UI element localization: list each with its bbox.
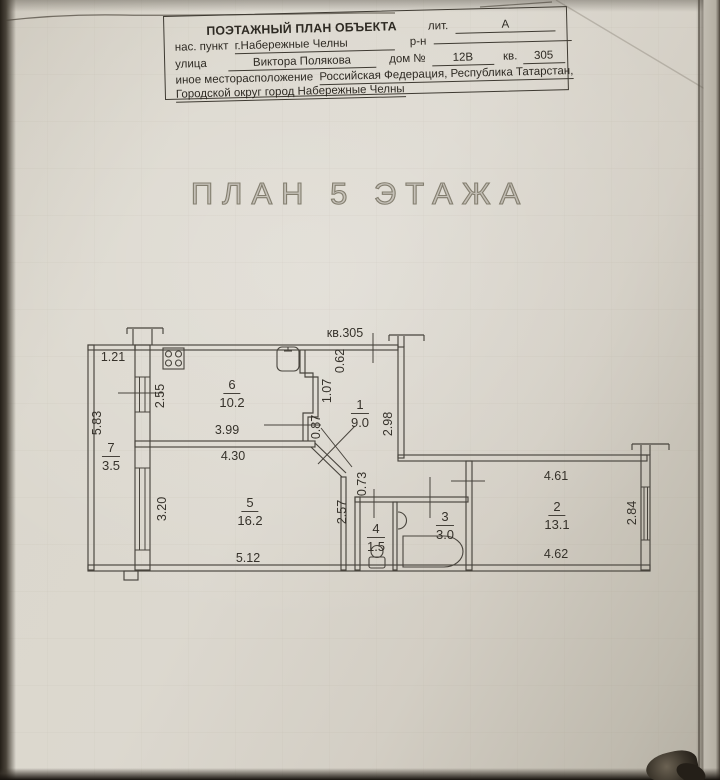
photo-left-edge xyxy=(0,0,16,780)
dimension-label: 2.55 xyxy=(153,384,167,408)
balcony-outer-wall xyxy=(88,345,94,570)
left-wall-band xyxy=(135,345,150,570)
room-area: 16.2 xyxy=(237,512,262,528)
dimension-label: 4.62 xyxy=(544,547,568,561)
room-area: 10.2 xyxy=(219,394,244,410)
room-label-5: 516.2 xyxy=(237,494,262,528)
dimension-label: 5.12 xyxy=(236,551,260,565)
dimension-label: 4.61 xyxy=(544,469,568,483)
room-label-1: 19.0 xyxy=(351,396,369,430)
room-number: 6 xyxy=(223,377,240,394)
dimension-label: 2.98 xyxy=(381,412,395,436)
room2-left-wall xyxy=(466,461,472,570)
room-number: 1 xyxy=(351,397,368,414)
photo-bottom-edge xyxy=(0,768,720,780)
wc-bath-divider-wall xyxy=(393,502,397,570)
room-label-7: 73.5 xyxy=(102,439,120,473)
dimension-label: 5.83 xyxy=(90,411,104,435)
kitchen-room5-wall xyxy=(135,441,315,447)
room-label-6: 610.2 xyxy=(219,376,244,410)
room-number: 2 xyxy=(548,499,565,516)
dimension-label: 0.62 xyxy=(333,349,347,373)
room-number: 4 xyxy=(367,521,384,538)
dimension-label: 3.20 xyxy=(155,497,169,521)
dimension-label: 2.57 xyxy=(335,500,349,524)
dimension-label: 0.73 xyxy=(355,472,369,496)
floor-plan-drawing xyxy=(0,0,720,780)
room-number: 7 xyxy=(102,440,119,457)
door-marks-and-ticks xyxy=(118,333,485,518)
photo-top-shadow xyxy=(0,0,720,14)
corridor-right-wall xyxy=(398,347,404,458)
dimension-label: 0.87 xyxy=(309,415,323,439)
wc-bath-top-wall xyxy=(355,497,468,502)
room2-right-wall xyxy=(641,455,650,570)
room-number: 3 xyxy=(436,509,453,526)
bottom-stub xyxy=(124,571,138,580)
wc-left-wall xyxy=(355,497,360,570)
room-area: 1.5 xyxy=(367,538,385,554)
dimension-label: 2.84 xyxy=(625,501,639,525)
room-area: 13.1 xyxy=(544,516,569,532)
room-label-4: 41.5 xyxy=(367,520,385,554)
bathroom-sink-icon xyxy=(398,512,407,529)
dimension-label: 1.07 xyxy=(320,379,334,403)
room-label-2: 213.1 xyxy=(544,498,569,532)
photo-right-edge xyxy=(696,0,720,780)
room-area: 3.0 xyxy=(436,526,454,542)
room-number: 5 xyxy=(241,495,258,512)
room-label-3: 33.0 xyxy=(436,508,454,542)
dimension-label: 3.99 xyxy=(215,423,239,437)
stove-icon xyxy=(163,348,184,369)
apartment-number-label: кв.305 xyxy=(327,326,363,340)
kitchen-sink-icon xyxy=(277,347,299,371)
dimension-label: 1.21 xyxy=(101,350,125,364)
dimension-label: 4.30 xyxy=(221,449,245,463)
room-area: 9.0 xyxy=(351,414,369,430)
room-area: 3.5 xyxy=(102,457,120,473)
photographed-floorplan-page: ПОЭТАЖНЫЙ ПЛАН ОБЪЕКТА лит. А нас. пункт… xyxy=(0,0,720,780)
diagonal-wall xyxy=(315,443,346,473)
room2-top-wall xyxy=(398,455,647,461)
